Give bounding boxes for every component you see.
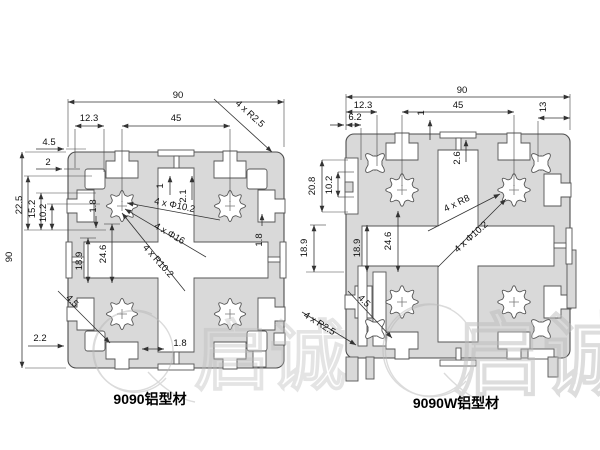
dim-label: 6.2	[348, 112, 361, 123]
dim-label: 2.2	[33, 333, 46, 344]
dim-label: 20.8	[307, 177, 318, 196]
dim-label: 90	[173, 90, 184, 101]
dim-label: 12.3	[354, 100, 373, 111]
dim-label: 10.2	[38, 204, 49, 223]
dim-left-top-wall-a: 4.5	[36, 137, 86, 149]
dim-label: 1	[416, 110, 427, 115]
dim-left-bottom-offset: 2.2	[28, 333, 64, 346]
dim-label: 45	[171, 113, 182, 124]
dim-left-corner-radius: 4 x R2.5	[214, 98, 272, 152]
dim-label: 18.9	[74, 252, 85, 271]
left-profile-caption: 9090铝型材	[113, 391, 186, 407]
right-left-edge-recess	[345, 158, 358, 214]
dim-label: 4 x R2.5	[233, 98, 267, 130]
dim-label: 1	[155, 183, 166, 188]
extrusion-profile-drawing: 启诚 启诚 90 12.3 45	[0, 0, 600, 450]
dim-label: 18.9	[352, 239, 363, 258]
dim-label: 45	[453, 100, 464, 111]
dim-label: 13	[538, 102, 549, 113]
dim-label: 90	[4, 252, 15, 263]
technical-drawing-canvas: 启诚 启诚 90 12.3 45	[0, 0, 600, 450]
dim-right-cavity-a: 18.9	[299, 225, 344, 272]
right-profile-caption: 9090W铝型材	[413, 395, 499, 411]
watermark-logo-text: 启诚	[453, 307, 600, 407]
dim-label: 24.6	[98, 245, 109, 264]
dim-label: 4.5	[42, 137, 55, 148]
dim-label: 90	[457, 85, 468, 96]
dim-label: 18.9	[299, 239, 310, 258]
dim-label: 24.6	[383, 232, 394, 251]
dim-label: 2.6	[452, 151, 463, 164]
dim-label: 15.2	[27, 200, 38, 219]
dim-label: 1.8	[173, 338, 186, 349]
dim-label: 1.8	[88, 199, 99, 212]
dim-label: 10.2	[324, 176, 335, 195]
dim-label: 2	[45, 157, 50, 168]
dim-label: 1.8	[254, 233, 265, 246]
dim-label: 12.3	[80, 113, 99, 124]
dim-label: 22.5	[14, 196, 25, 215]
